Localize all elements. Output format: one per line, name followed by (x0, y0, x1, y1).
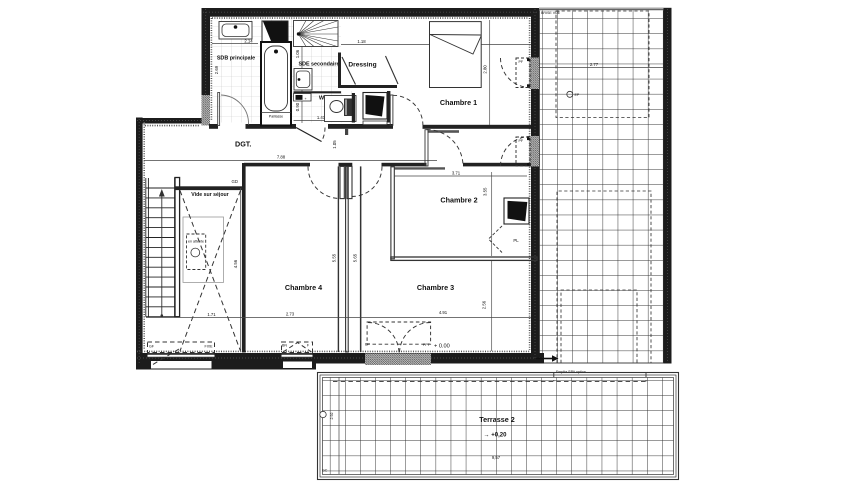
svg-text:1.06: 1.06 (295, 49, 300, 58)
svg-text:7.88: 7.88 (277, 155, 286, 160)
svg-text:4.56: 4.56 (233, 259, 238, 268)
svg-text:FIXE: FIXE (205, 345, 214, 349)
svg-text:PL: PL (513, 238, 519, 243)
svg-text:1.71: 1.71 (207, 312, 216, 317)
svg-text:2.77: 2.77 (590, 62, 599, 67)
svg-text:PF: PF (519, 60, 524, 64)
svg-text:→ +0,20: → +0,20 (484, 433, 508, 439)
svg-text:2.56: 2.56 (482, 300, 487, 309)
svg-text:DGT.: DGT. (235, 140, 251, 149)
svg-text:2.80: 2.80 (483, 65, 488, 74)
svg-text:4.91: 4.91 (439, 310, 448, 315)
svg-text:5.55: 5.55 (331, 253, 336, 262)
svg-text:+ 0.00: + 0.00 (434, 344, 450, 350)
svg-text:Terrasse 2: Terrasse 2 (479, 415, 514, 424)
svg-text:Vide sur séjour: Vide sur séjour (191, 192, 228, 198)
svg-text:SDE secondaire: SDE secondaire (298, 62, 339, 68)
svg-text:3.71: 3.71 (452, 170, 461, 175)
svg-text:PFT: PFT (423, 343, 431, 347)
svg-text:GD: GD (232, 179, 238, 184)
svg-text:Chambre 1: Chambre 1 (440, 98, 477, 107)
svg-text:SDB principale: SDB principale (217, 56, 255, 62)
svg-text:9,57: 9,57 (492, 455, 501, 460)
svg-text:Chambre 4: Chambre 4 (285, 283, 322, 292)
svg-text:BN: BN (282, 344, 287, 348)
svg-text:GF: GF (149, 345, 155, 349)
svg-text:3.55: 3.55 (482, 187, 487, 196)
svg-text:EP: EP (575, 93, 580, 97)
svg-text:2.69: 2.69 (214, 65, 219, 74)
svg-text:1.05: 1.05 (332, 140, 337, 149)
svg-text:Dressing: Dressing (348, 62, 376, 69)
svg-text:Paillasse: Paillasse (269, 115, 283, 119)
svg-text:BP: BP (365, 343, 370, 347)
svg-text:2.73: 2.73 (286, 312, 295, 317)
svg-text:Chambre 2: Chambre 2 (440, 196, 477, 205)
svg-text:BRISE VUE: BRISE VUE (541, 11, 561, 15)
svg-text:1.18: 1.18 (357, 39, 366, 44)
svg-text:0.90: 0.90 (295, 102, 300, 111)
svg-text:Chambre 3: Chambre 3 (417, 283, 454, 292)
svg-text:GC: GC (322, 469, 328, 473)
svg-text:Emplta SPA option: Emplta SPA option (556, 370, 586, 374)
svg-text:+: + (305, 97, 307, 101)
svg-text:PF: PF (519, 139, 524, 143)
svg-text:en attente: en attente (188, 240, 204, 244)
svg-text:2.92: 2.92 (330, 413, 334, 420)
svg-text:5.65: 5.65 (353, 253, 358, 262)
